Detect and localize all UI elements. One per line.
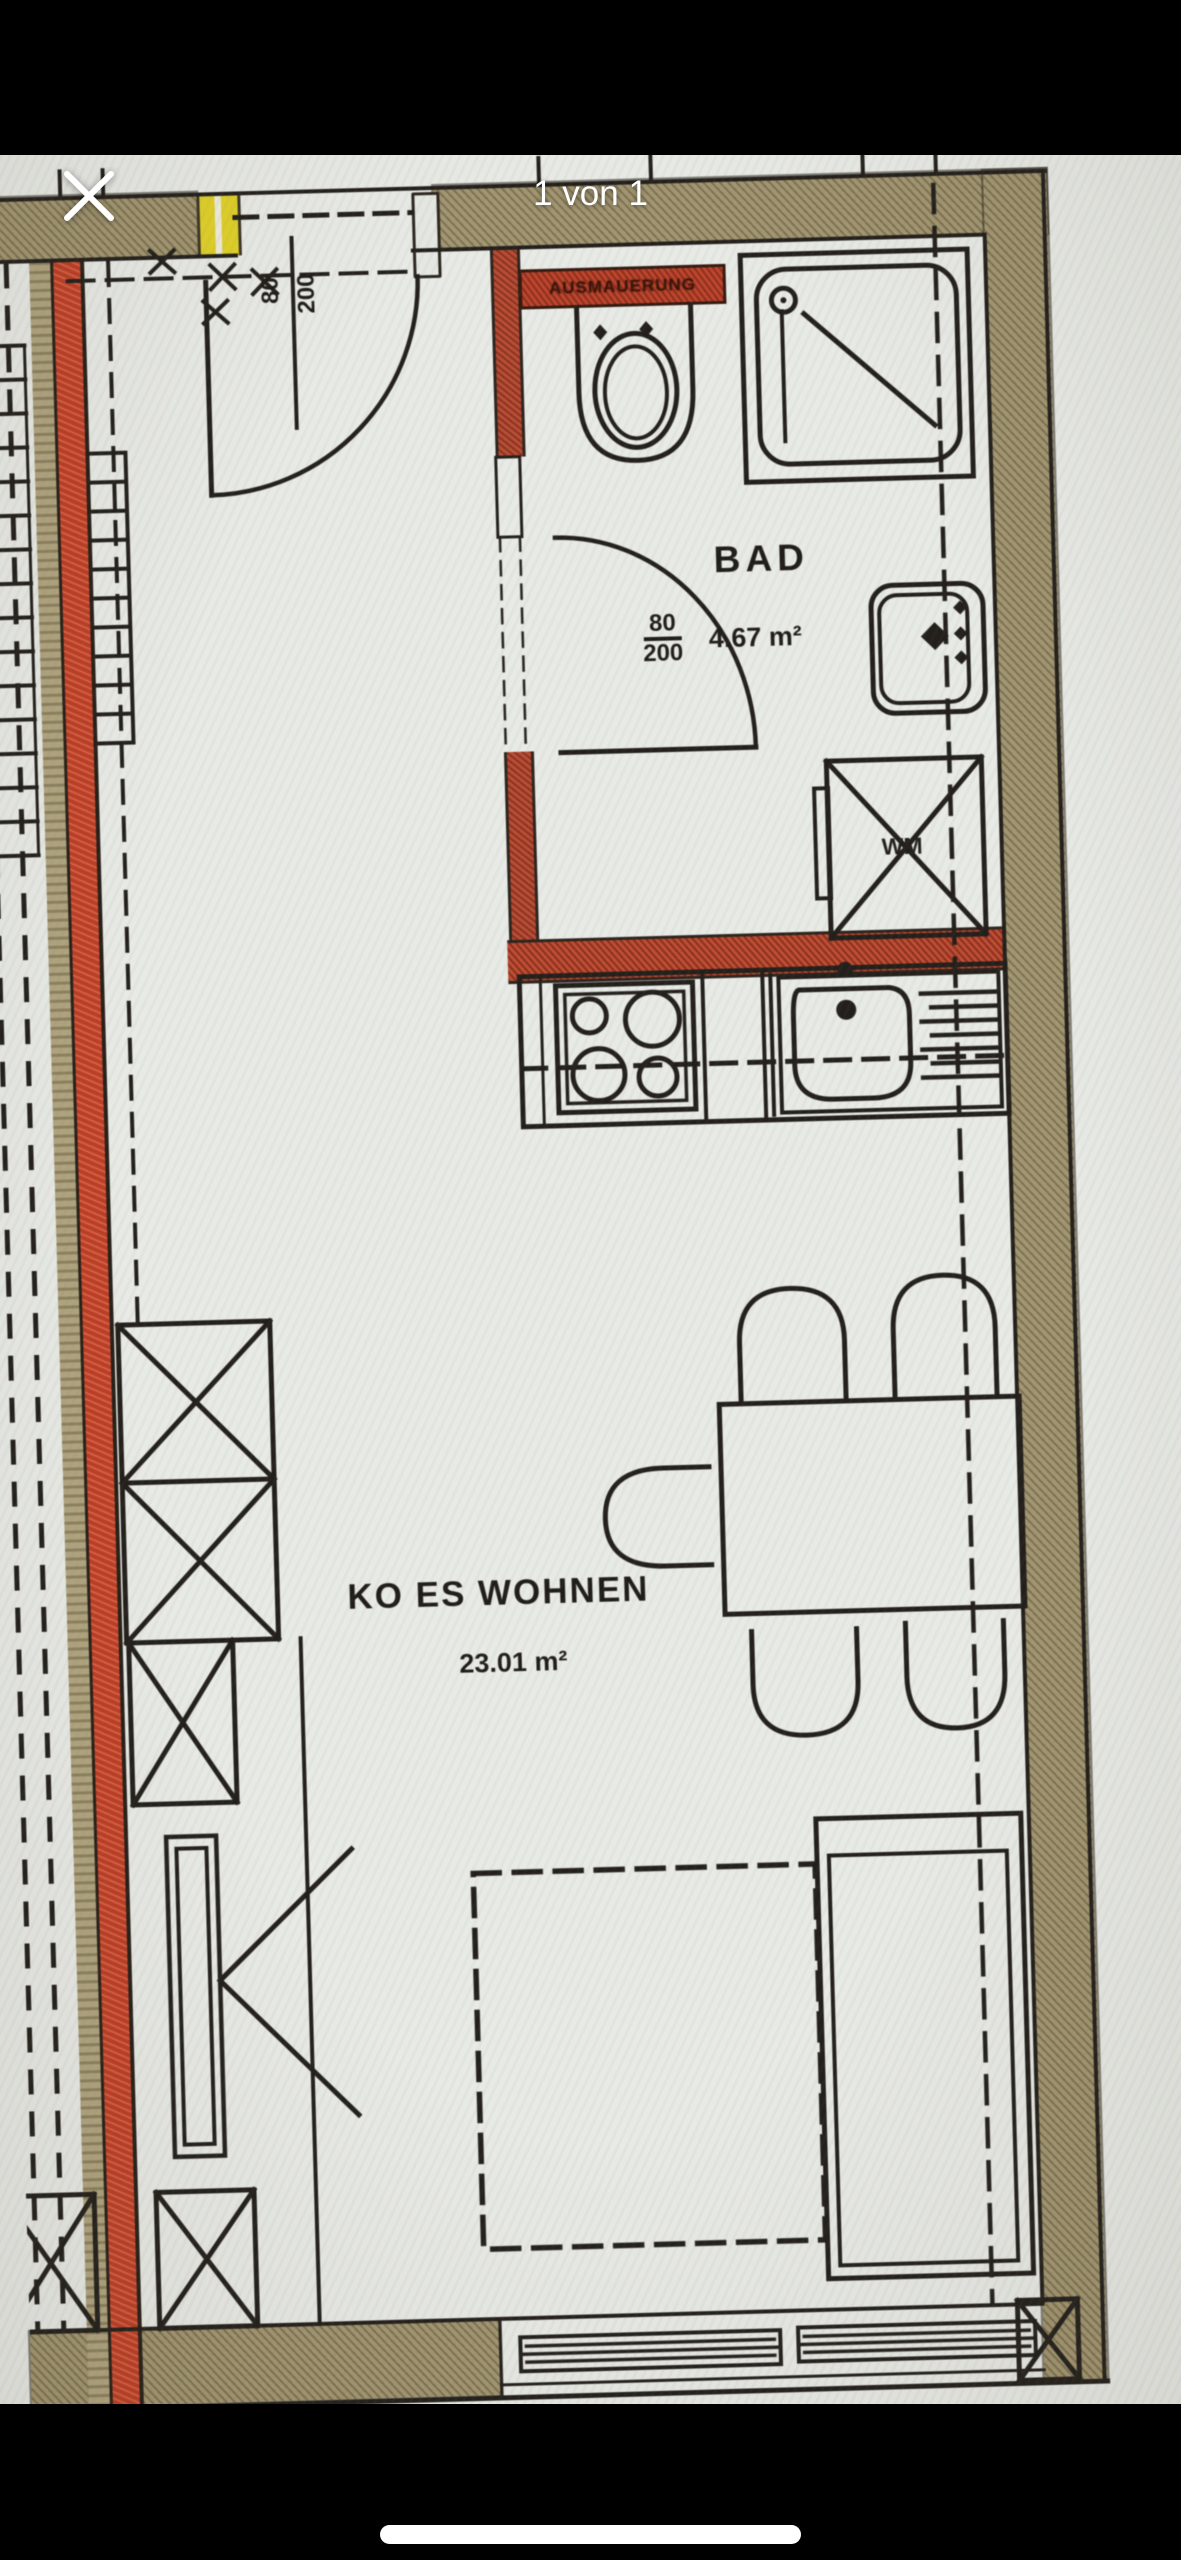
chair-top-left — [738, 1287, 846, 1403]
wardrobe-x-4 — [156, 2190, 258, 2329]
window-1 — [520, 2330, 781, 2371]
bathroom-door — [496, 450, 756, 754]
room-label-bad: BAD — [713, 537, 809, 582]
bath-door-width: 80 — [643, 610, 683, 641]
dining-table — [719, 1396, 1025, 1614]
cabinet-door-swing — [217, 1849, 359, 2119]
entry-door — [66, 212, 424, 499]
section-dashed-line — [933, 185, 992, 2304]
bath-door-height: 200 — [619, 640, 708, 668]
room-area-bad: 4.67 m² — [708, 621, 802, 655]
bed-folded-dashed-outline — [473, 1864, 825, 2249]
plan-linework: WM — [0, 155, 1181, 2404]
floorplan-drawing: AUSMAUERUNG — [0, 155, 1181, 2404]
close-icon — [58, 167, 120, 225]
stove — [555, 982, 695, 1113]
chair-bottom-left — [752, 1629, 860, 1737]
chair-top-right — [892, 1274, 997, 1395]
wardrobe-x-2 — [122, 1479, 278, 1643]
tall-cabinet — [166, 1836, 225, 2157]
floorplan-photo[interactable]: AUSMAUERUNG — [0, 155, 1181, 2404]
home-indicator[interactable] — [380, 2525, 801, 2544]
wardrobe-x-1 — [118, 1321, 274, 1483]
screen: { "viewer": { "counter": "1 von 1", "clo… — [0, 0, 1181, 2560]
washbasin — [870, 583, 986, 714]
room-area-wohnen: 23.01 m² — [459, 1646, 568, 1680]
chairs — [599, 1274, 1007, 1741]
entry-door-height: 200 — [291, 263, 323, 324]
room-label-wohnen: KO ES WOHNEN — [347, 1569, 650, 1617]
window-2 — [798, 2321, 1036, 2362]
wardrobe-x-3 — [129, 1640, 237, 1805]
cabinet-front-line — [301, 1638, 320, 2324]
neighbour-wardrobe-x — [4, 2194, 98, 2332]
toilet — [577, 305, 695, 462]
page-counter: 1 von 1 — [0, 174, 1181, 214]
close-button[interactable] — [58, 167, 120, 225]
entry-door-width: 80 — [255, 260, 287, 321]
right-ladder-hatch — [91, 453, 133, 744]
bath-door-dimension: 80 200 — [618, 610, 708, 668]
washing-machine-label: WM — [881, 833, 923, 860]
chair-left — [604, 1467, 712, 1568]
bed — [816, 1813, 1034, 2279]
neighbour-dashed-lines — [0, 263, 166, 2332]
kitchen-sink — [778, 957, 1002, 1112]
chair-bottom-right — [905, 1621, 1006, 1730]
